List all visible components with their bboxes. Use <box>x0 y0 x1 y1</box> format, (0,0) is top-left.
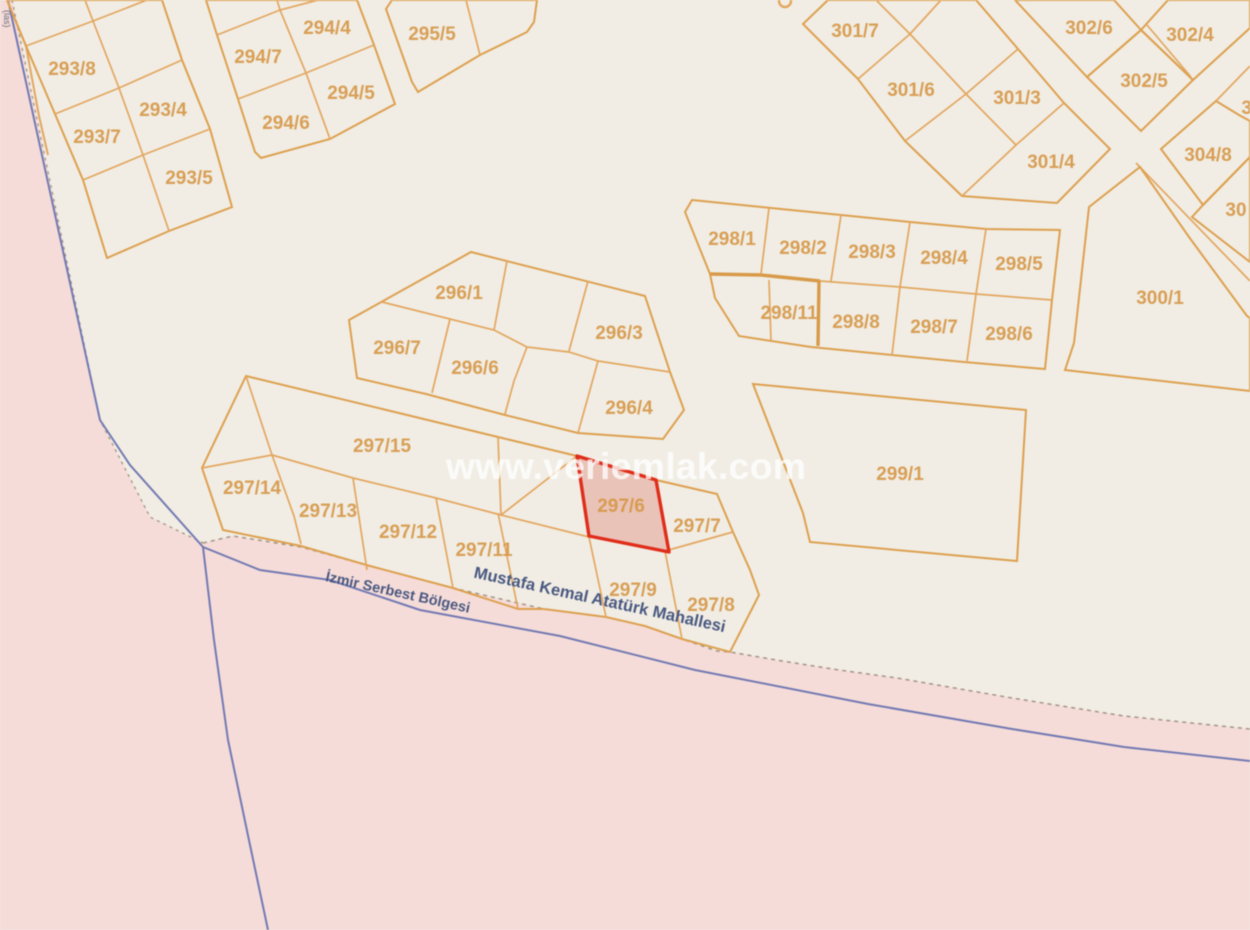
svg-text:297/6: 297/6 <box>597 496 645 517</box>
svg-text:298/2: 298/2 <box>779 238 827 259</box>
svg-text:293/5: 293/5 <box>165 168 213 189</box>
svg-text:www.veriemlak.com: www.veriemlak.com <box>445 445 807 487</box>
svg-text:301/7: 301/7 <box>831 21 879 42</box>
svg-text:298/8: 298/8 <box>832 312 880 333</box>
svg-text:294/5: 294/5 <box>327 83 375 104</box>
svg-text:302/5: 302/5 <box>1120 71 1168 92</box>
svg-text:297/14: 297/14 <box>223 478 282 499</box>
svg-text:298/6: 298/6 <box>985 324 1033 345</box>
svg-text:298/7: 298/7 <box>910 317 958 338</box>
svg-text:296/4: 296/4 <box>605 398 653 419</box>
svg-text:293/4: 293/4 <box>139 100 187 121</box>
svg-text:298/3: 298/3 <box>848 242 896 263</box>
svg-text:(las): (las) <box>2 10 12 28</box>
svg-text:301/3: 301/3 <box>993 88 1041 109</box>
svg-text:298/11: 298/11 <box>760 303 817 324</box>
svg-text:293/7: 293/7 <box>73 127 121 148</box>
svg-text:296/1: 296/1 <box>435 283 483 304</box>
svg-text:301/6: 301/6 <box>887 80 935 101</box>
svg-text:298/5: 298/5 <box>995 254 1043 275</box>
svg-text:294/7: 294/7 <box>234 47 282 68</box>
svg-text:300/1: 300/1 <box>1136 288 1184 309</box>
svg-text:297/7: 297/7 <box>673 516 721 537</box>
svg-text:30: 30 <box>1241 98 1250 119</box>
svg-text:296/6: 296/6 <box>451 358 499 379</box>
svg-text:297/15: 297/15 <box>353 436 412 457</box>
svg-text:297/11: 297/11 <box>455 540 512 561</box>
svg-text:297/13: 297/13 <box>299 501 357 522</box>
svg-text:302/4: 302/4 <box>1166 25 1214 46</box>
svg-text:296/7: 296/7 <box>373 338 421 359</box>
svg-text:296/3: 296/3 <box>595 323 643 344</box>
svg-text:295/5: 295/5 <box>408 24 456 45</box>
svg-text:30: 30 <box>1225 200 1246 221</box>
svg-text:298/4: 298/4 <box>920 248 968 269</box>
svg-text:301/4: 301/4 <box>1027 152 1075 173</box>
svg-text:294/4: 294/4 <box>303 18 351 39</box>
svg-text:299/1: 299/1 <box>876 464 924 485</box>
svg-text:302/6: 302/6 <box>1065 18 1113 39</box>
svg-text:298/1: 298/1 <box>708 229 756 250</box>
svg-text:293/8: 293/8 <box>48 59 96 80</box>
svg-text:297/12: 297/12 <box>379 522 437 543</box>
svg-text:304/8: 304/8 <box>1184 145 1232 166</box>
svg-text:294/6: 294/6 <box>262 113 310 134</box>
